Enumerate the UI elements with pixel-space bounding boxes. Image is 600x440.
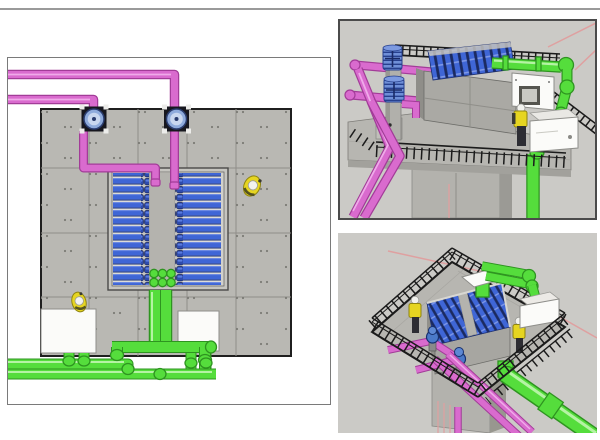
uv-channel-basin bbox=[108, 168, 228, 290]
lamp-caps-left bbox=[141, 173, 149, 285]
channel-drain-ports bbox=[150, 269, 175, 286]
mixer-pump-right bbox=[162, 105, 191, 134]
separator-line bbox=[0, 8, 600, 10]
pipe-end-cap bbox=[170, 182, 179, 189]
green-main-discharge-pipe bbox=[498, 361, 597, 433]
lamp-bank-left bbox=[113, 173, 141, 285]
control-cabinet-left bbox=[41, 309, 96, 353]
viewport-plan-view[interactable] bbox=[7, 57, 331, 405]
perspective-top-drawing bbox=[340, 21, 595, 218]
perspective-bottom-drawing bbox=[338, 233, 597, 433]
pipe-end-cap bbox=[151, 179, 160, 186]
viewport-perspective-elevated[interactable] bbox=[338, 19, 597, 220]
control-cabinet-screen bbox=[512, 73, 554, 110]
lamp-bank-right bbox=[183, 173, 221, 285]
mixer-pump-left bbox=[80, 105, 109, 134]
support-pedestal bbox=[412, 166, 512, 218]
plan-view-drawing bbox=[8, 58, 330, 404]
lamp-caps-right bbox=[175, 173, 183, 285]
model-viewport-page bbox=[0, 0, 600, 440]
control-cabinet-box bbox=[530, 109, 578, 152]
uv-basin-3d bbox=[416, 42, 516, 134]
viewport-perspective-aerial[interactable] bbox=[338, 233, 597, 433]
